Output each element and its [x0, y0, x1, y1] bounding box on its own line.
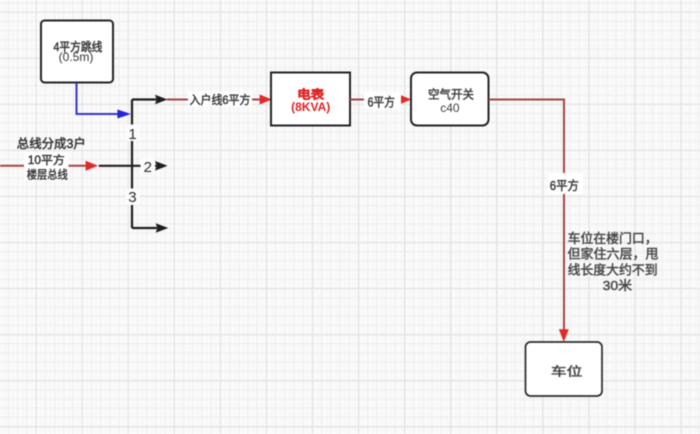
- svg-text:总线分成3户: 总线分成3户: [17, 136, 86, 151]
- svg-text:10平方: 10平方: [28, 153, 65, 167]
- svg-text:3: 3: [128, 189, 136, 206]
- svg-text:线长度大约不到: 线长度大约不到: [568, 262, 658, 277]
- svg-text:1: 1: [128, 126, 136, 143]
- svg-text:6平方: 6平方: [367, 94, 395, 109]
- svg-text:楼层总线: 楼层总线: [27, 168, 68, 182]
- svg-text:30米: 30米: [603, 278, 633, 293]
- svg-text:(0.5m): (0.5m): [59, 50, 94, 64]
- svg-text:空气开关: 空气开关: [428, 86, 474, 101]
- svg-text:(8KVA): (8KVA): [291, 100, 330, 114]
- svg-text:车位: 车位: [551, 364, 583, 379]
- svg-text:入户线6平方: 入户线6平方: [190, 92, 251, 107]
- svg-text:但家住六层，甩: 但家住六层，甩: [568, 247, 659, 262]
- svg-text:6平方: 6平方: [550, 178, 579, 193]
- svg-text:c40: c40: [440, 101, 460, 115]
- svg-text:2: 2: [144, 159, 152, 176]
- svg-text:车位在楼门口，: 车位在楼门口，: [568, 231, 658, 246]
